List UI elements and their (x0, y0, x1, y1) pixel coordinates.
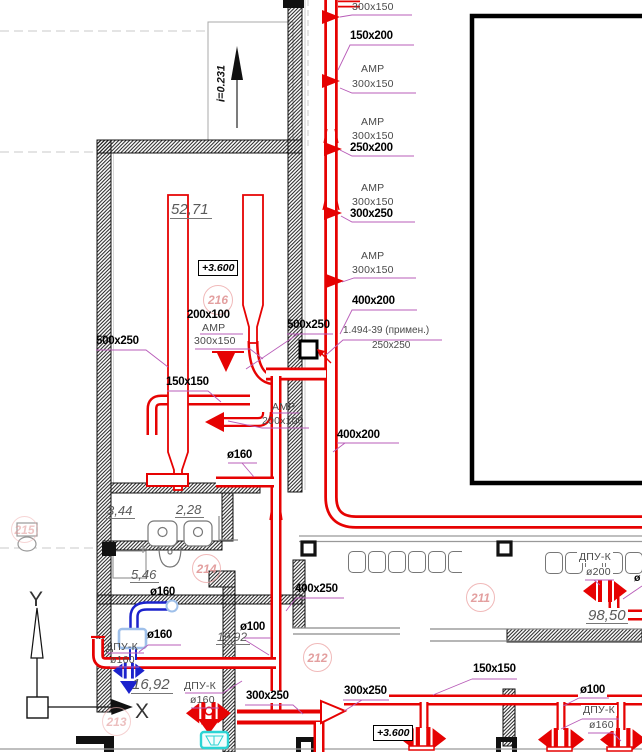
duct-size-label: 200x100 (262, 416, 304, 427)
dpu-label: ДПУ-К (106, 642, 138, 653)
duct-size-label: 250x200 (350, 143, 393, 155)
dpu-label: ДПУ-К (577, 552, 613, 563)
dpu-label: ДПУ-К (184, 681, 216, 692)
annotation-layer: i=0.231 300x150 150x200 АМР 300x150 АМР … (0, 0, 642, 752)
duct-size-label: 400x200 (352, 296, 395, 308)
elevation-badge: +3.600 (373, 725, 413, 741)
duct-size-label: 300x250 (342, 686, 389, 698)
duct-size-label: 300x250 (244, 691, 291, 703)
room-area-label: 2,28 (175, 503, 204, 518)
slope-label: i=0.231 (217, 54, 228, 114)
amp-label: АМР (361, 117, 384, 128)
room-tag-215: 215 (11, 516, 38, 543)
room-area-label: 5,46 (130, 568, 159, 583)
duct-size-label: ø160 (150, 587, 175, 599)
duct-size-label: 300x150 (352, 2, 394, 13)
dpu-label: ДПУ-К (581, 705, 617, 716)
duct-size-label: 150x150 (166, 377, 209, 389)
room-area-label: 16,92 (131, 677, 173, 694)
dpu-diameter-label: ø160 (587, 720, 616, 731)
elevation-badge: +3.600 (198, 260, 238, 276)
duct-size-label: 150x200 (350, 31, 393, 43)
dpu-diameter-label: ø160 (190, 695, 215, 706)
room-tag-214: 214 (192, 554, 221, 583)
duct-size-label: 300x150 (352, 197, 394, 208)
duct-size-label: 500x250 (287, 320, 330, 332)
damper-note: 250x250 (372, 341, 410, 351)
room-area-label: 3,44 (106, 504, 135, 519)
duct-size-label: 300x150 (352, 265, 394, 276)
duct-size-label: 500x250 (96, 336, 139, 348)
duct-size-label: 400x200 (337, 430, 380, 442)
room-tag-211: 211 (466, 583, 495, 612)
duct-size-label-partial: ø (634, 573, 641, 584)
dpu-diameter-label: ø160 (110, 655, 135, 666)
amp-label: АМР (272, 402, 295, 413)
duct-size-label: ø160 (227, 450, 252, 462)
drawing-canvas: Y X i=0.231 3 (0, 0, 642, 752)
duct-size-label: ø160 (147, 630, 172, 642)
duct-size-label: 300x150 (352, 131, 394, 142)
amp-label: АМР (361, 183, 384, 194)
room-area-label: 98,50 (586, 608, 628, 624)
room-tag-213: 213 (102, 707, 131, 736)
duct-size-label: 300x150 (194, 336, 236, 347)
duct-size-label: 300x150 (352, 79, 394, 90)
amp-label: АМР (202, 323, 225, 334)
duct-size-label: ø100 (578, 685, 607, 697)
bench-row (348, 551, 462, 573)
amp-label: АМР (361, 251, 384, 262)
damper-note: 1.494-39 (примен.) (343, 326, 429, 336)
dpu-diameter-label: ø200 (584, 567, 613, 578)
amp-label: АМР (361, 64, 384, 75)
room-tag-212: 212 (303, 643, 332, 672)
duct-size-label: 200x100 (187, 310, 230, 322)
duct-size-label: 300x250 (350, 209, 393, 221)
room-area-label: 52,71 (170, 202, 212, 219)
duct-size-label: ø100 (240, 622, 265, 634)
duct-size-label: 150x150 (471, 664, 518, 676)
duct-size-label: 400x250 (295, 584, 338, 596)
